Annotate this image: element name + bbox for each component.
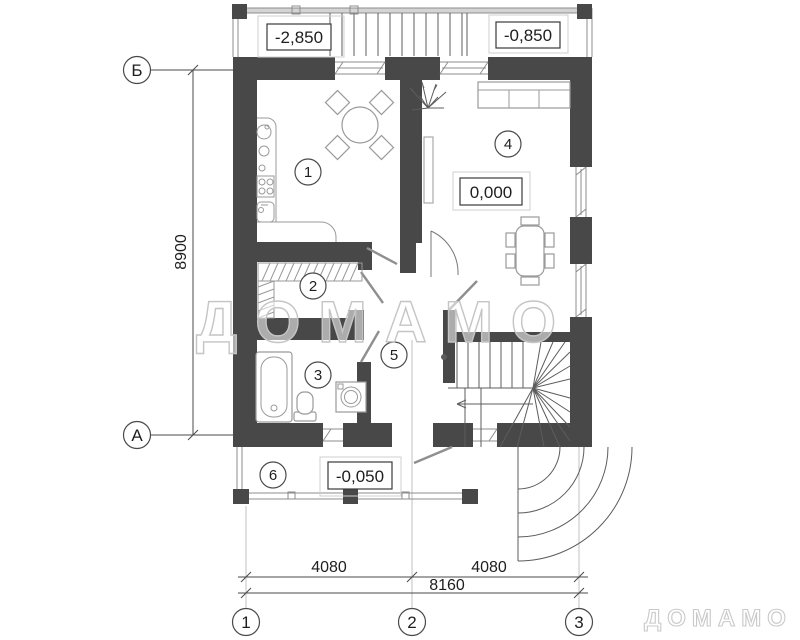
sofa — [478, 82, 570, 108]
elevation-terrace: -0,050 — [336, 467, 384, 486]
axis-marker-2: 2 — [407, 613, 416, 632]
window-north-1 — [335, 62, 385, 74]
washing-machine — [336, 382, 366, 412]
shelf — [424, 137, 433, 203]
watermark-brand-logo: ДОМАМО — [644, 605, 792, 632]
elevation-exterior-stair: -2,850 — [275, 28, 323, 47]
room-number-3: 3 — [314, 367, 322, 384]
stair-direction-arrow — [457, 400, 533, 408]
window-south-1 — [323, 429, 343, 441]
elevation-ground-floor: 0,000 — [470, 183, 513, 202]
room-number-4: 4 — [504, 136, 512, 153]
door-kitchen-living — [431, 231, 458, 277]
room-number-1: 1 — [304, 164, 312, 181]
left-dimension: Б А 8900 — [124, 57, 234, 449]
window-south-2 — [473, 429, 497, 441]
curved-entrance-steps — [518, 447, 632, 561]
floor-plan-sheet: -2,850 -0,850 0,000 -0,050 1 2 3 4 5 6 Б… — [0, 0, 800, 640]
bathtub — [256, 352, 292, 422]
round-table — [325, 90, 393, 159]
dimension-vertical-total: 8900 — [173, 234, 190, 270]
window-east-2 — [576, 264, 586, 317]
axis-marker-b: Б — [131, 61, 142, 80]
railing-post — [462, 489, 478, 504]
railing-post — [233, 489, 249, 504]
window-north-2 — [440, 62, 488, 74]
axis-marker-3: 3 — [574, 613, 583, 632]
railing-post — [232, 4, 247, 19]
kitchen-fixtures — [257, 118, 336, 242]
floor-plan-drawing: -2,850 -0,850 0,000 -0,050 1 2 3 4 5 6 Б… — [0, 0, 800, 640]
railing-post — [577, 4, 592, 19]
axis-marker-1: 1 — [241, 613, 250, 632]
elevation-entry-landing: -0,850 — [504, 26, 552, 45]
door-leaf-entrance — [414, 447, 452, 463]
dining-table — [506, 217, 554, 285]
toilet — [294, 392, 316, 421]
dimension-bottom-right: 4080 — [471, 559, 507, 576]
dimension-bottom-left: 4080 — [311, 559, 347, 576]
window-east-1 — [576, 167, 586, 217]
room-number-6: 6 — [269, 467, 277, 484]
axis-marker-a: А — [131, 426, 143, 445]
axis-extension-lines — [246, 340, 579, 610]
exterior-stair-treads — [330, 13, 467, 56]
watermark-overlay: ДОМАМО — [196, 290, 574, 355]
dimension-bottom-total: 8160 — [429, 577, 465, 594]
